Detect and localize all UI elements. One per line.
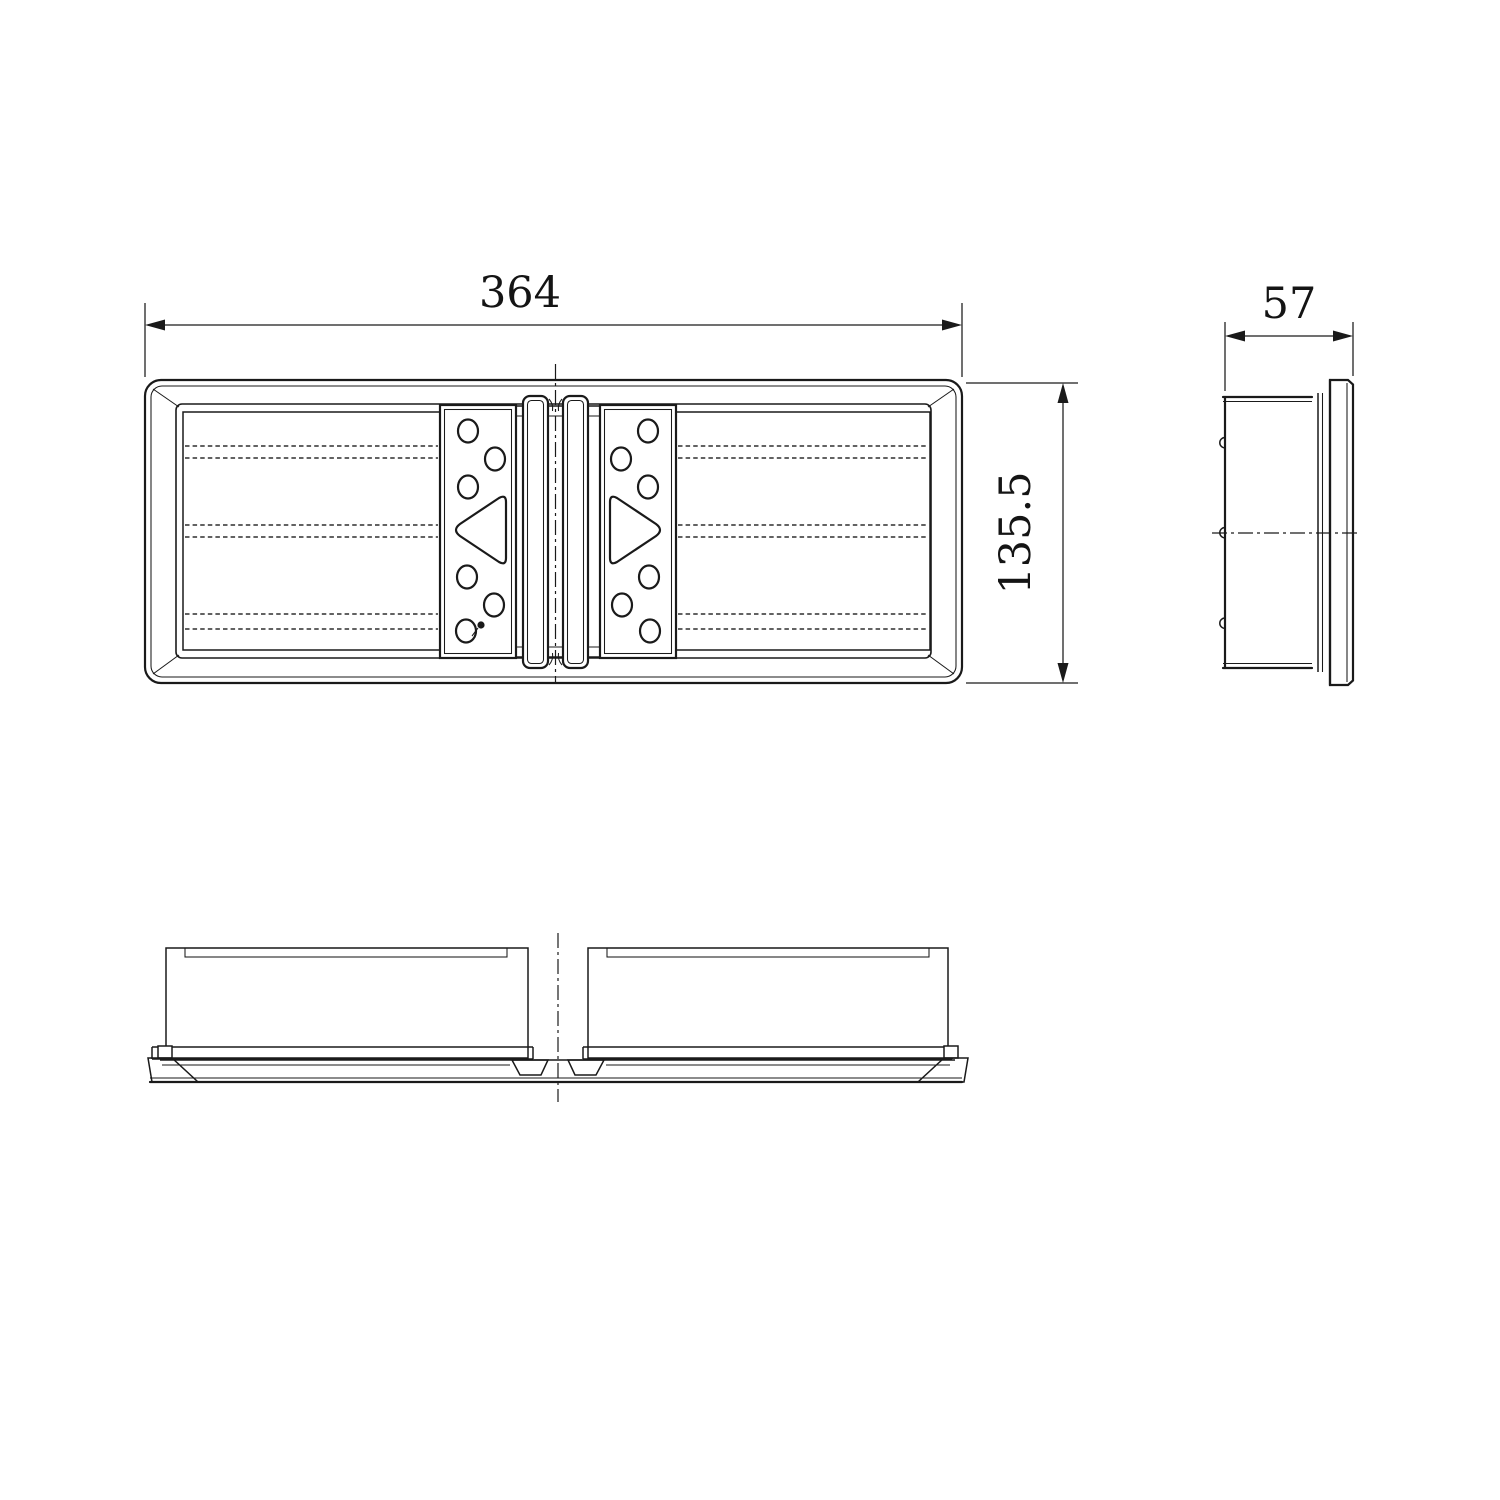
clamp-bar-right bbox=[563, 396, 588, 668]
front-inner-frame bbox=[176, 404, 931, 658]
air-filter-drawing: 364 135.5 57 bbox=[0, 0, 1500, 1500]
center-notch-left bbox=[512, 1060, 548, 1075]
clamp-notch bbox=[549, 399, 553, 411]
front-height-dimension: 135.5 bbox=[966, 383, 1078, 683]
shoulder-right bbox=[583, 1047, 952, 1059]
stitch-rows bbox=[185, 446, 928, 629]
technical-drawing-page: 364 135.5 57 bbox=[0, 0, 1500, 1500]
corner-bevel-bottom-left bbox=[153, 655, 179, 674]
arrowhead-bottom bbox=[1058, 663, 1069, 683]
shoulder-left bbox=[152, 1047, 533, 1059]
seal-tab-left bbox=[158, 1046, 172, 1058]
pleat-tip-band-right bbox=[607, 948, 929, 957]
pleat-tip-band-left bbox=[185, 948, 507, 957]
center-clamp bbox=[523, 364, 588, 682]
clamp-bar-left bbox=[523, 396, 548, 668]
seal-tab-right bbox=[944, 1046, 958, 1058]
bracket-panel-left bbox=[440, 405, 516, 658]
width-dimension-label: 364 bbox=[479, 268, 561, 318]
arrowhead-right bbox=[942, 320, 962, 331]
front-view bbox=[145, 364, 962, 683]
arrowhead-left bbox=[145, 320, 165, 331]
clamp-notch bbox=[558, 399, 562, 411]
arrowhead-left bbox=[1225, 331, 1245, 342]
bracket-panel-right bbox=[600, 405, 676, 658]
corner-bevel-top-left bbox=[153, 389, 179, 407]
front-width-dimension: 364 bbox=[145, 268, 962, 377]
pleat-block-left bbox=[166, 948, 528, 1058]
side-view bbox=[1212, 380, 1361, 685]
depth-dimension-label: 57 bbox=[1262, 279, 1317, 329]
front-outer-frame bbox=[145, 380, 962, 683]
pin-mark bbox=[477, 621, 484, 628]
corner-bevel-bottom-right bbox=[928, 655, 954, 674]
height-dimension-label: 135.5 bbox=[991, 471, 1041, 594]
corner-bevel-top-right bbox=[928, 389, 954, 407]
arrowhead-right bbox=[1333, 331, 1353, 342]
front-outer-frame-inner-line bbox=[151, 386, 956, 677]
pleat-block-right bbox=[588, 948, 948, 1058]
arrowhead-top bbox=[1058, 383, 1069, 403]
bottom-view bbox=[148, 933, 968, 1102]
center-notch-right bbox=[568, 1060, 604, 1075]
clamp-notch bbox=[549, 653, 553, 665]
side-depth-dimension: 57 bbox=[1225, 279, 1353, 391]
clamp-notch bbox=[558, 653, 562, 665]
